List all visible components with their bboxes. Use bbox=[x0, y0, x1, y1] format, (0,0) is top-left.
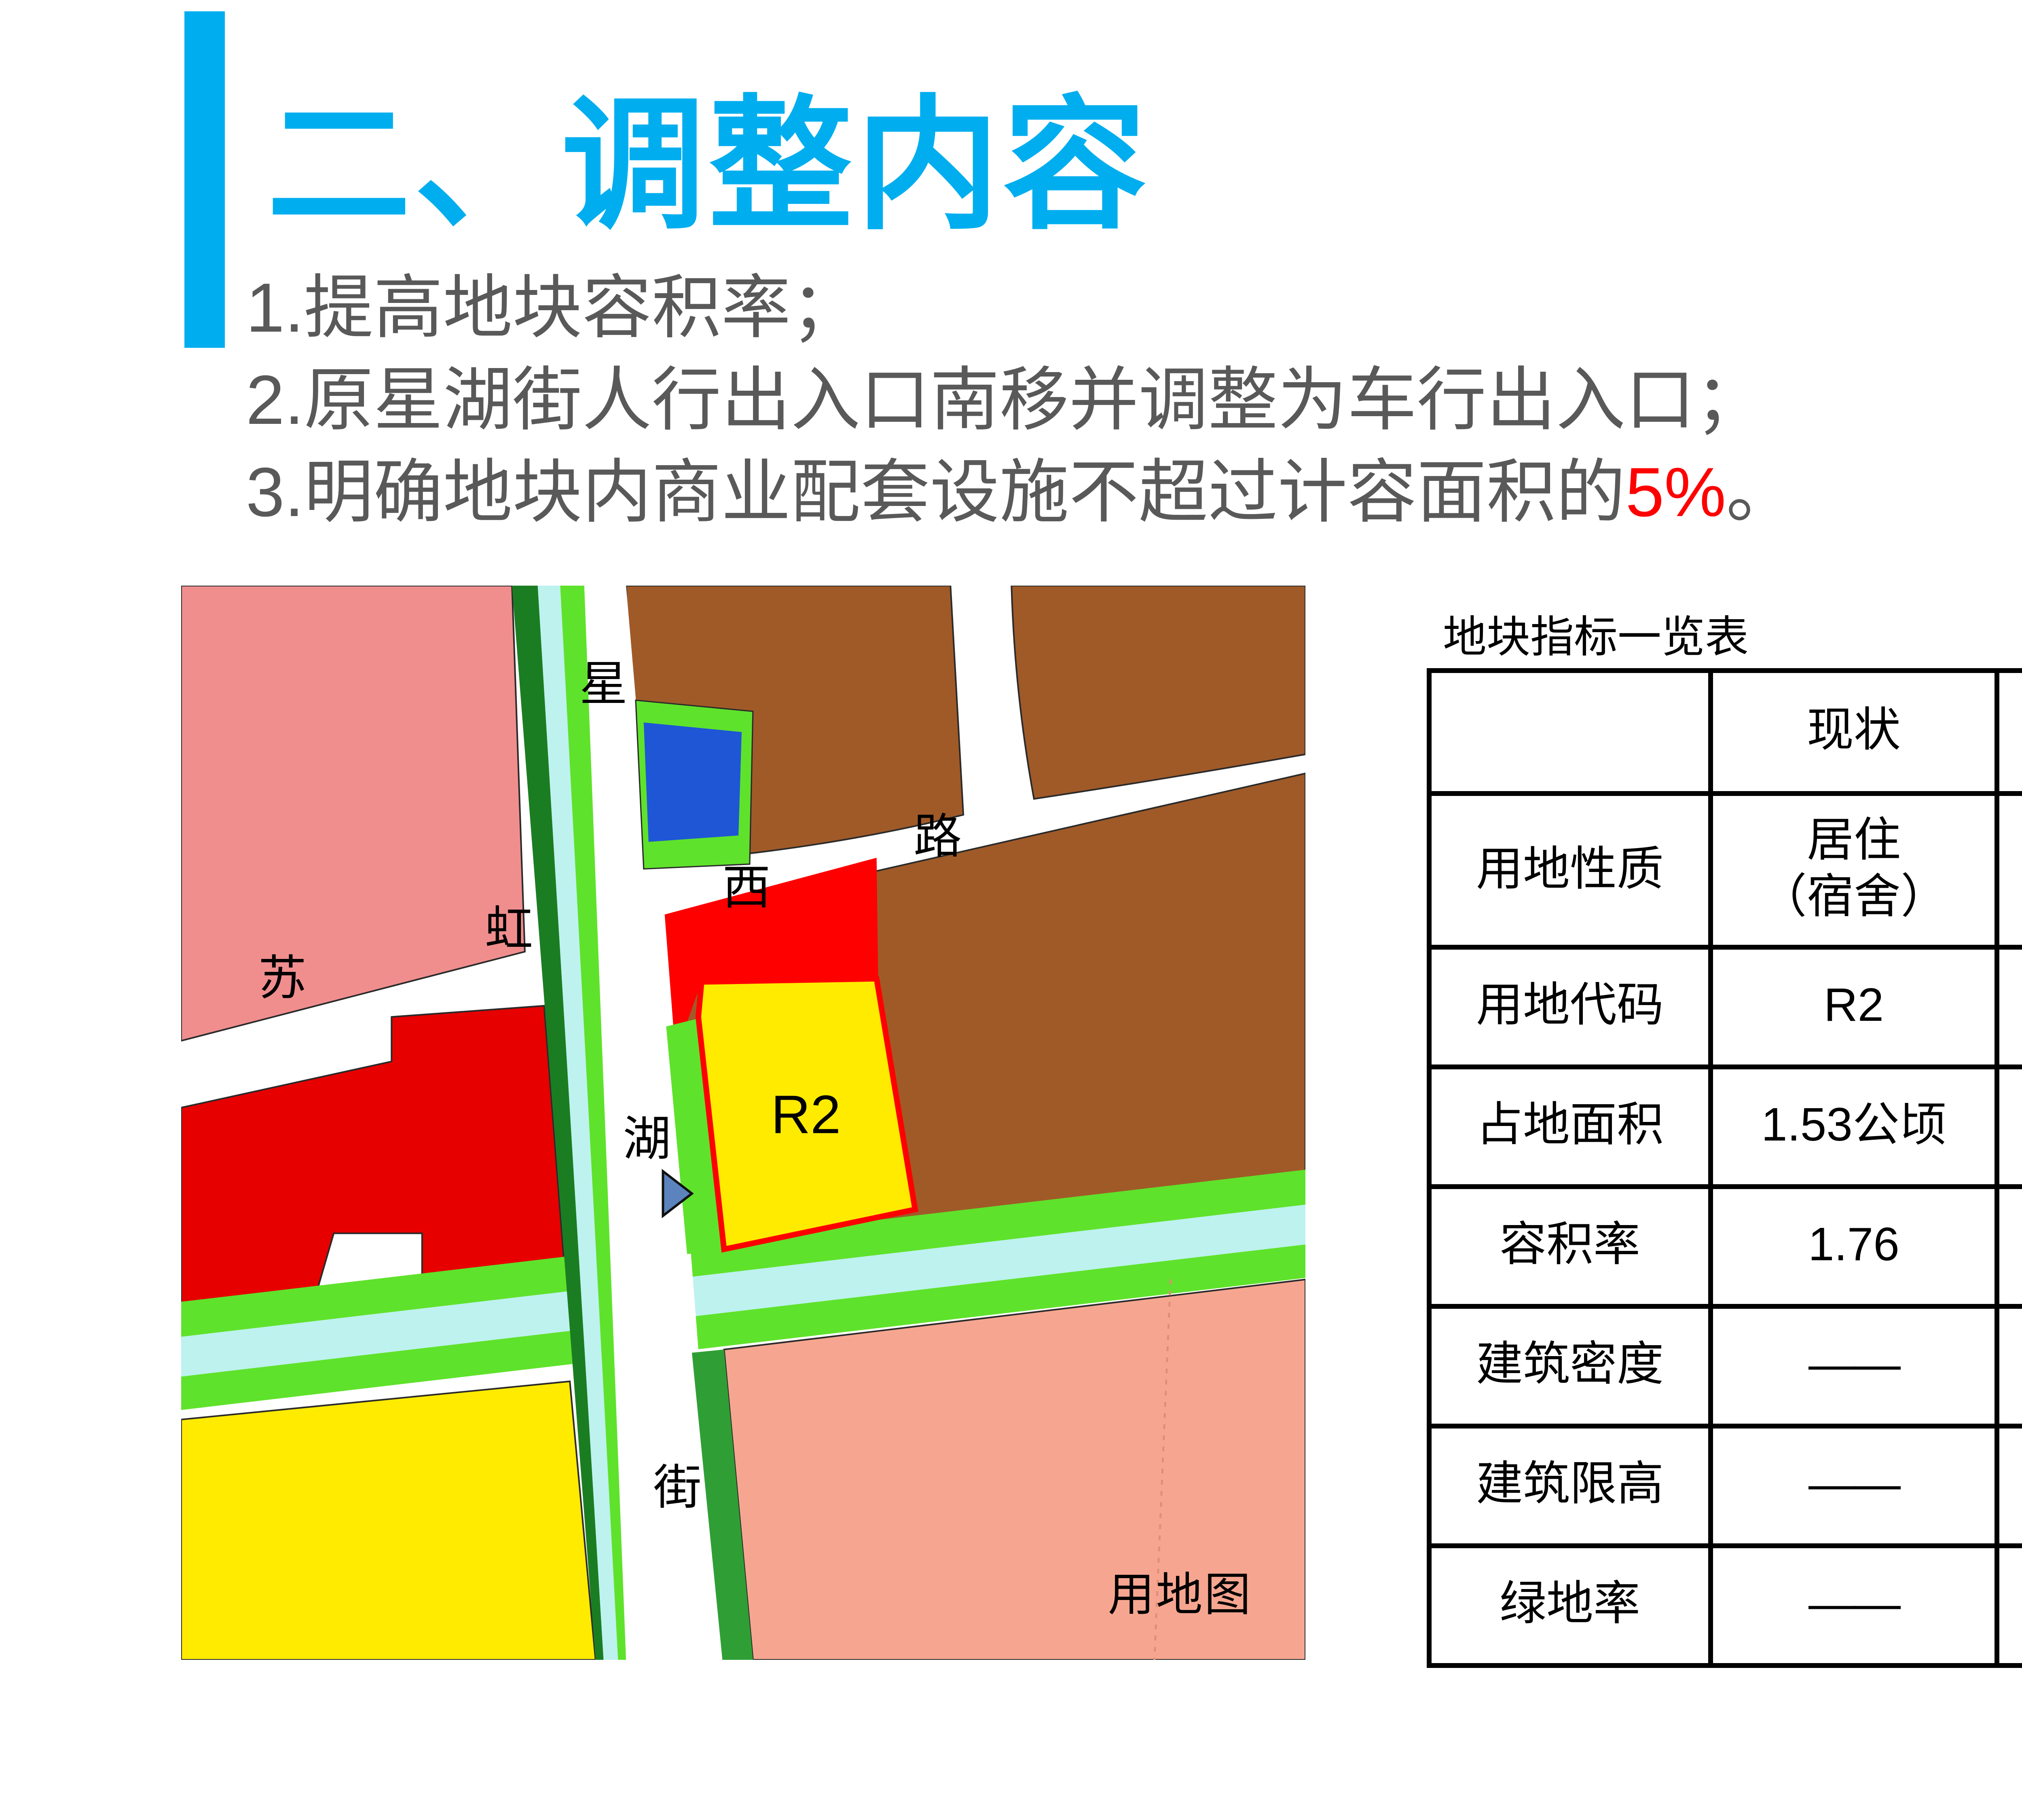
point-1: 1.提高地块容积率； bbox=[246, 264, 1796, 356]
indicator-table: 现状 调整后 用地性质 居住 （宿舍） 居住 （宿舍） 用地代码 R2 R2 占… bbox=[1427, 668, 2022, 1668]
land-use-map-svg: 星 湖 街 苏 虹 西 路 R2 用地图 bbox=[181, 586, 1305, 1660]
row-label: 建筑限高 bbox=[1432, 1424, 1708, 1543]
point-2: 2.原星湖街人行出入口南移并调整为车行出入口； bbox=[246, 356, 1796, 448]
row-label: 用地代码 bbox=[1432, 945, 1708, 1064]
table-header-empty bbox=[1432, 673, 1708, 791]
street-label-xi: 西 bbox=[722, 861, 770, 914]
title-accent-bar bbox=[184, 11, 225, 348]
point-3-text: 3.明确地块内商业配套设施不超过计容面积的 bbox=[246, 455, 1626, 532]
cell-current: —— bbox=[1708, 1304, 1995, 1424]
row-label: 占地面积 bbox=[1432, 1064, 1708, 1184]
cell-current: —— bbox=[1708, 1424, 1995, 1543]
point-3: 3.明确地块内商业配套设施不超过计容面积的5%。 bbox=[246, 448, 1796, 540]
street-label-lu: 路 bbox=[914, 811, 962, 863]
cell-current: —— bbox=[1708, 1543, 1995, 1663]
cell-current: 居住 （宿舍） bbox=[1708, 791, 1995, 945]
point-3-highlight: 5% bbox=[1626, 455, 1726, 532]
cell-adjusted: 1.53公顷 bbox=[1995, 1064, 2022, 1184]
slide: 二、调整内容 1.提高地块容积率； 2.原星湖街人行出入口南移并调整为车行出入口… bbox=[0, 0, 2022, 1820]
page-title: 二、调整内容 bbox=[267, 49, 1150, 257]
cell-current: 1.76 bbox=[1708, 1184, 1995, 1304]
cell-current: 1.53公顷 bbox=[1708, 1064, 1995, 1184]
row-label: 建筑密度 bbox=[1432, 1304, 1708, 1424]
land-use-map: 星 湖 街 苏 虹 西 路 R2 用地图 bbox=[181, 586, 1305, 1660]
row-label: 容积率 bbox=[1432, 1184, 1708, 1304]
table-header-current: 现状 bbox=[1708, 673, 1995, 791]
street-label-xing: 星 bbox=[580, 658, 628, 711]
map-caption: 用地图 bbox=[1108, 1569, 1252, 1620]
point-3-period: 。 bbox=[1726, 455, 1796, 532]
parcel-blue bbox=[644, 722, 742, 842]
row-label: 绿地率 bbox=[1432, 1543, 1708, 1663]
street-label-jie: 街 bbox=[654, 1461, 702, 1514]
table-header-adjusted: 调整后 bbox=[1995, 673, 2022, 791]
cell-adjusted: R2 bbox=[1995, 945, 2022, 1064]
street-label-hong: 虹 bbox=[485, 903, 533, 956]
street-label-hu: 湖 bbox=[623, 1113, 671, 1166]
parcel-yellow-bottom-left bbox=[181, 1381, 596, 1660]
cell-adjusted: —— bbox=[1995, 1304, 2022, 1424]
cell-adjusted-highlight: 1.9 bbox=[1995, 1184, 2022, 1304]
cell-current: R2 bbox=[1708, 945, 1995, 1064]
cell-adjusted: —— bbox=[1995, 1543, 2022, 1663]
cell-adjusted: 居住 （宿舍） bbox=[1995, 791, 2022, 945]
cell-adjusted: —— bbox=[1995, 1424, 2022, 1543]
table-title: 地块指标一览表 bbox=[1443, 602, 1749, 665]
adjustment-points: 1.提高地块容积率； 2.原星湖街人行出入口南移并调整为车行出入口； 3.明确地… bbox=[246, 264, 1796, 540]
r2-plot-label: R2 bbox=[771, 1084, 841, 1145]
row-label: 用地性质 bbox=[1432, 791, 1708, 945]
street-label-su: 苏 bbox=[258, 952, 307, 1005]
